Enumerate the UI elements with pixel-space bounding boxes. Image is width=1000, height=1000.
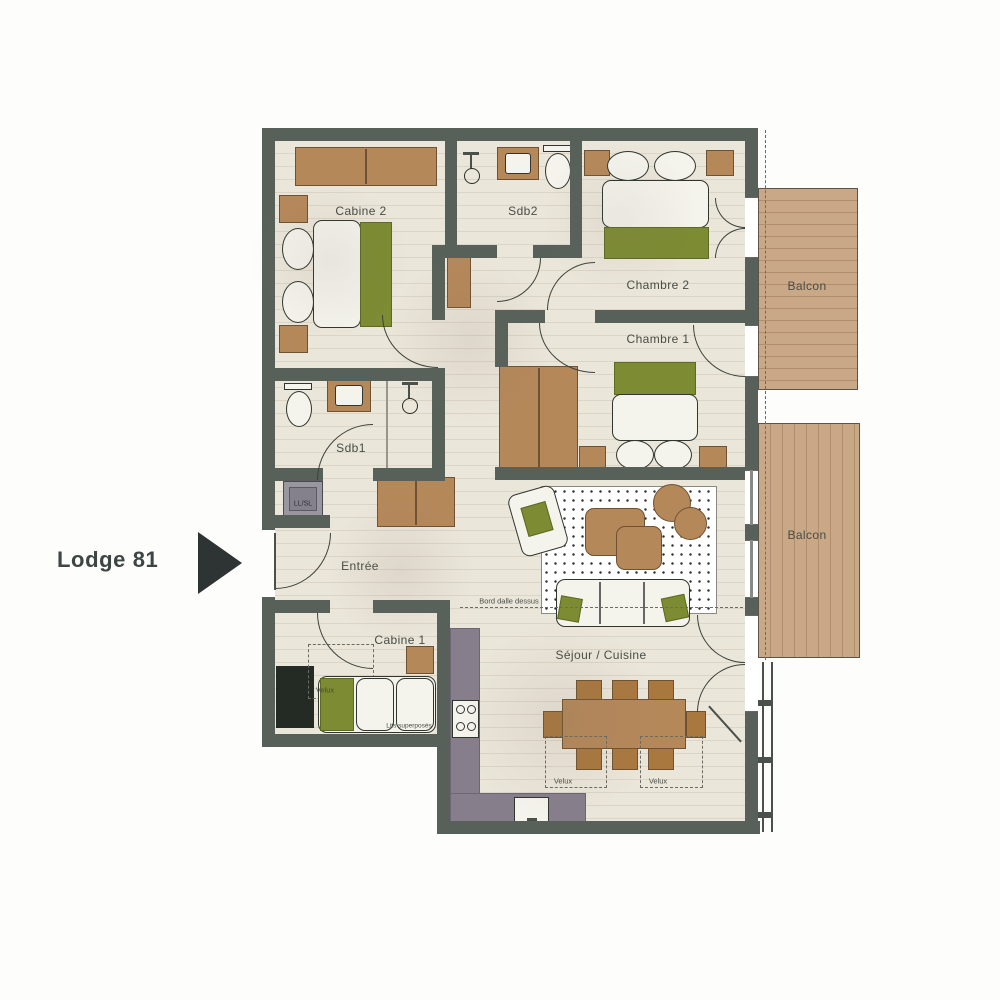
nightstand xyxy=(279,195,308,223)
railing-line-inner xyxy=(771,662,773,832)
room-label-chambre2: Chambre 2 xyxy=(627,278,690,292)
room-label-entree: Entrée xyxy=(341,559,379,573)
pillow xyxy=(607,151,649,181)
roof-edge-dashed-line xyxy=(765,130,768,660)
nightstand xyxy=(279,325,308,353)
wall xyxy=(262,597,275,747)
wall xyxy=(262,734,442,747)
shower-head-icon xyxy=(464,168,480,184)
wall xyxy=(432,245,445,320)
burner-icon xyxy=(456,705,465,714)
nightstand xyxy=(706,150,734,176)
dining-chair xyxy=(612,748,638,770)
balcony-door-opening xyxy=(745,197,758,258)
sofa-cushion-line xyxy=(599,582,601,624)
wall xyxy=(437,821,760,834)
bord-dalle-dashed-line xyxy=(460,607,758,609)
burner-icon xyxy=(456,722,465,731)
window-glass-line xyxy=(750,540,753,598)
pouf-small xyxy=(674,507,707,540)
bed-runner-green xyxy=(614,362,696,395)
shower-partition xyxy=(386,379,388,468)
wall xyxy=(533,245,582,258)
railing-post xyxy=(758,700,773,706)
toilet-bowl xyxy=(286,391,312,427)
nightstand xyxy=(406,646,434,674)
toilet-bowl xyxy=(545,153,571,189)
bunk-bed-label: Lits superposés xyxy=(386,723,432,730)
coffee-table-small xyxy=(616,526,662,570)
toilet-tank xyxy=(284,383,312,390)
railing-post xyxy=(758,757,773,763)
wardrobe-divider xyxy=(538,368,540,475)
wardrobe-divider xyxy=(365,149,367,184)
toilet-tank xyxy=(543,145,571,152)
shower-hose-icon xyxy=(408,384,410,399)
pillow xyxy=(282,281,314,323)
wall xyxy=(595,310,758,323)
room-label-sejour: Séjour / Cuisine xyxy=(555,648,646,662)
sofa-throw-green xyxy=(557,595,583,622)
window-glass-line xyxy=(750,470,753,525)
room-label-cabine1: Cabine 1 xyxy=(374,633,425,647)
wall xyxy=(495,467,758,480)
wall xyxy=(262,468,323,481)
wall xyxy=(445,245,497,258)
wall xyxy=(570,128,582,258)
corridor-cupboard xyxy=(447,252,471,308)
shower-arm-icon xyxy=(402,382,418,385)
closet-divider xyxy=(415,479,417,525)
bed-duvet xyxy=(313,220,361,328)
burner-icon xyxy=(467,722,476,731)
bord-dalle-label: Bord dalle dessus xyxy=(479,597,539,606)
wall xyxy=(373,468,445,481)
velux-label: Velux xyxy=(316,686,334,695)
wall xyxy=(437,613,450,834)
pillow xyxy=(654,151,696,181)
wall xyxy=(432,368,445,480)
wall xyxy=(262,515,330,528)
bed-duvet xyxy=(602,180,709,228)
plan-title: Lodge 81 xyxy=(57,547,158,573)
balcony-door-opening xyxy=(745,325,758,377)
bed-duvet xyxy=(612,394,698,441)
sofa-cushion-line xyxy=(643,582,645,624)
bed-runner-green xyxy=(360,222,392,327)
sink-basin xyxy=(505,153,531,174)
shower-head-icon xyxy=(402,398,418,414)
pillow xyxy=(616,440,654,470)
sink-basin xyxy=(335,385,363,406)
dining-chair xyxy=(686,711,706,738)
room-label-cabine2: Cabine 2 xyxy=(335,204,386,218)
room-label-balcon-bottom: Balcon xyxy=(787,528,826,542)
floor-plan: Cabine 2 Sdb2 Chambre 2 Balcon Chambre 1… xyxy=(0,0,1000,1000)
wall xyxy=(262,600,330,613)
railing-post xyxy=(758,812,773,818)
wall xyxy=(262,368,445,381)
room-label-sdb1: Sdb1 xyxy=(336,441,366,455)
wall xyxy=(373,600,450,613)
pillow xyxy=(654,440,692,470)
room-label-balcon-top: Balcon xyxy=(787,279,826,293)
room-label-chambre1: Chambre 1 xyxy=(627,332,690,346)
shower-hose-icon xyxy=(470,154,472,169)
wall xyxy=(495,310,508,367)
burner-icon xyxy=(467,705,476,714)
nightstand xyxy=(584,150,610,176)
velux-label: Velux xyxy=(554,777,572,786)
railing-line-outer xyxy=(762,662,764,832)
velux-label: Velux xyxy=(649,777,667,786)
wall xyxy=(262,128,758,141)
bed-runner-green xyxy=(604,227,709,259)
pillow xyxy=(282,228,314,270)
balcony-door-opening xyxy=(745,615,758,712)
wall xyxy=(445,128,457,258)
room-label-sdb2: Sdb2 xyxy=(508,204,538,218)
pointer-arrow-icon xyxy=(198,532,242,594)
dining-chair xyxy=(543,711,563,738)
washer-label: LL/SL xyxy=(294,501,312,508)
entry-door-leaf xyxy=(274,533,276,590)
